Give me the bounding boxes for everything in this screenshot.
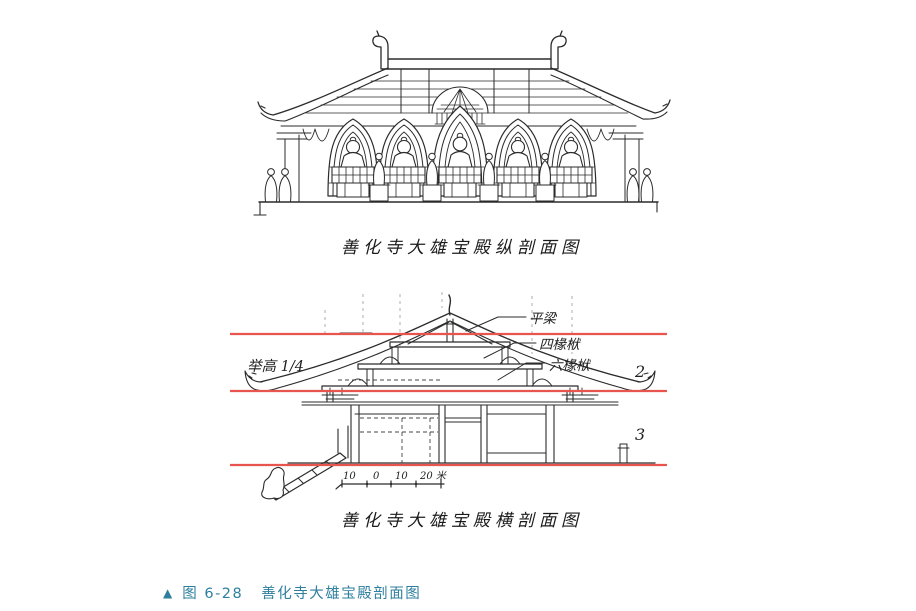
bracket-sets bbox=[322, 388, 598, 399]
transverse-section-drawing: 平梁 四椽栿 六椽栿 举高 1/4 2 3 10 0 10 20 米 bbox=[230, 292, 690, 504]
scale-label-10-right: 10 bbox=[395, 471, 408, 482]
garden-rock bbox=[262, 467, 284, 498]
liuchuanfu-label: 六椽栿 bbox=[549, 358, 591, 374]
longitudinal-section-svg bbox=[251, 8, 673, 228]
longitudinal-section-drawing bbox=[251, 8, 673, 228]
figure-title: 善化寺大雄宝殿剖面图 bbox=[261, 582, 421, 603]
scale-label-0: 0 bbox=[373, 471, 380, 482]
pingliang-label: 平梁 bbox=[529, 311, 558, 327]
sichuanfu-label: 四椽栿 bbox=[539, 337, 581, 353]
roof-profile bbox=[245, 295, 655, 391]
columns bbox=[351, 405, 554, 463]
red-reference-lines bbox=[230, 334, 667, 465]
raise-height-label: 举高 1/4 bbox=[247, 358, 304, 375]
base-platform bbox=[254, 202, 658, 215]
figure-triangle-icon: ▲ bbox=[163, 586, 172, 600]
zone-3-label: 3 bbox=[635, 425, 645, 444]
hidden-members bbox=[338, 380, 440, 463]
scale-bar: 10 0 10 20 米 bbox=[336, 470, 447, 489]
longitudinal-caption: 善化寺大雄宝殿纵剖面图 bbox=[251, 233, 673, 258]
main-ridge-chiwei bbox=[373, 31, 566, 69]
transverse-section-svg: 平梁 四椽栿 六椽栿 举高 1/4 2 3 10 0 10 20 米 bbox=[230, 292, 690, 504]
buddha-statues bbox=[328, 106, 596, 197]
book-page: 善化寺大雄宝殿纵剖面图 bbox=[0, 0, 916, 611]
zone-2-label: 2 bbox=[634, 362, 645, 381]
sichuanfu-beam bbox=[358, 364, 542, 369]
transverse-caption: 善化寺大雄宝殿横剖面图 bbox=[251, 506, 673, 531]
scale-label-20m: 20 米 bbox=[419, 470, 447, 482]
figure-caption: ▲ 图 6-28 善化寺大雄宝殿剖面图 bbox=[163, 582, 421, 603]
figure-number: 图 6-28 bbox=[182, 582, 243, 603]
scale-label-10-left: 10 bbox=[343, 471, 356, 482]
